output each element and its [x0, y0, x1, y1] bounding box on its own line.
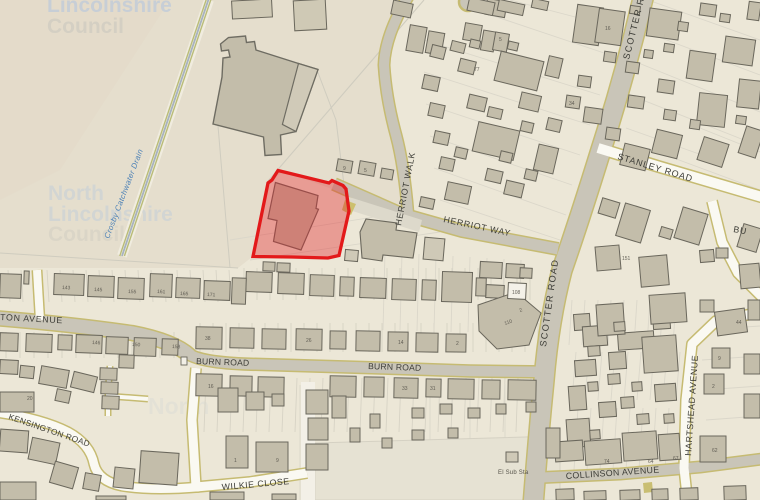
svg-text:14: 14	[398, 340, 404, 346]
svg-text:34: 34	[569, 101, 575, 107]
svg-text:158: 158	[172, 344, 181, 350]
svg-text:El Sub Sta: El Sub Sta	[498, 470, 529, 476]
svg-text:1: 1	[234, 458, 237, 464]
svg-text:155: 155	[128, 289, 137, 295]
svg-text:145: 145	[94, 287, 103, 293]
svg-text:161: 161	[157, 289, 166, 295]
svg-text:151: 151	[622, 256, 631, 262]
svg-text:2: 2	[456, 341, 459, 347]
svg-text:16: 16	[208, 384, 214, 390]
svg-text:171: 171	[207, 292, 216, 298]
svg-text:165: 165	[180, 291, 189, 297]
svg-text:5: 5	[499, 37, 502, 43]
svg-text:33: 33	[402, 386, 408, 392]
svg-text:74: 74	[604, 459, 610, 465]
svg-text:38: 38	[205, 336, 211, 342]
svg-text:150: 150	[132, 342, 141, 348]
svg-text:Council: Council	[47, 15, 124, 38]
svg-text:2: 2	[712, 384, 715, 390]
svg-text:North: North	[148, 393, 209, 419]
svg-text:16: 16	[605, 26, 611, 32]
svg-text:9: 9	[343, 166, 346, 172]
svg-text:44: 44	[736, 320, 742, 326]
svg-text:5: 5	[364, 168, 367, 174]
svg-text:62: 62	[712, 448, 718, 454]
svg-text:146: 146	[92, 340, 101, 346]
svg-text:143: 143	[62, 285, 71, 291]
svg-text:9: 9	[276, 458, 279, 464]
svg-text:31: 31	[430, 386, 436, 392]
svg-text:BURN ROAD: BURN ROAD	[368, 361, 422, 373]
svg-text:26: 26	[306, 338, 312, 344]
svg-text:77: 77	[474, 67, 480, 73]
svg-text:20: 20	[27, 396, 33, 402]
svg-text:BURN ROAD: BURN ROAD	[196, 356, 250, 368]
svg-text:North: North	[48, 182, 104, 205]
svg-text:67: 67	[673, 456, 679, 462]
svg-text:108: 108	[512, 290, 521, 296]
svg-text:64: 64	[648, 459, 654, 465]
svg-text:9: 9	[718, 356, 721, 362]
